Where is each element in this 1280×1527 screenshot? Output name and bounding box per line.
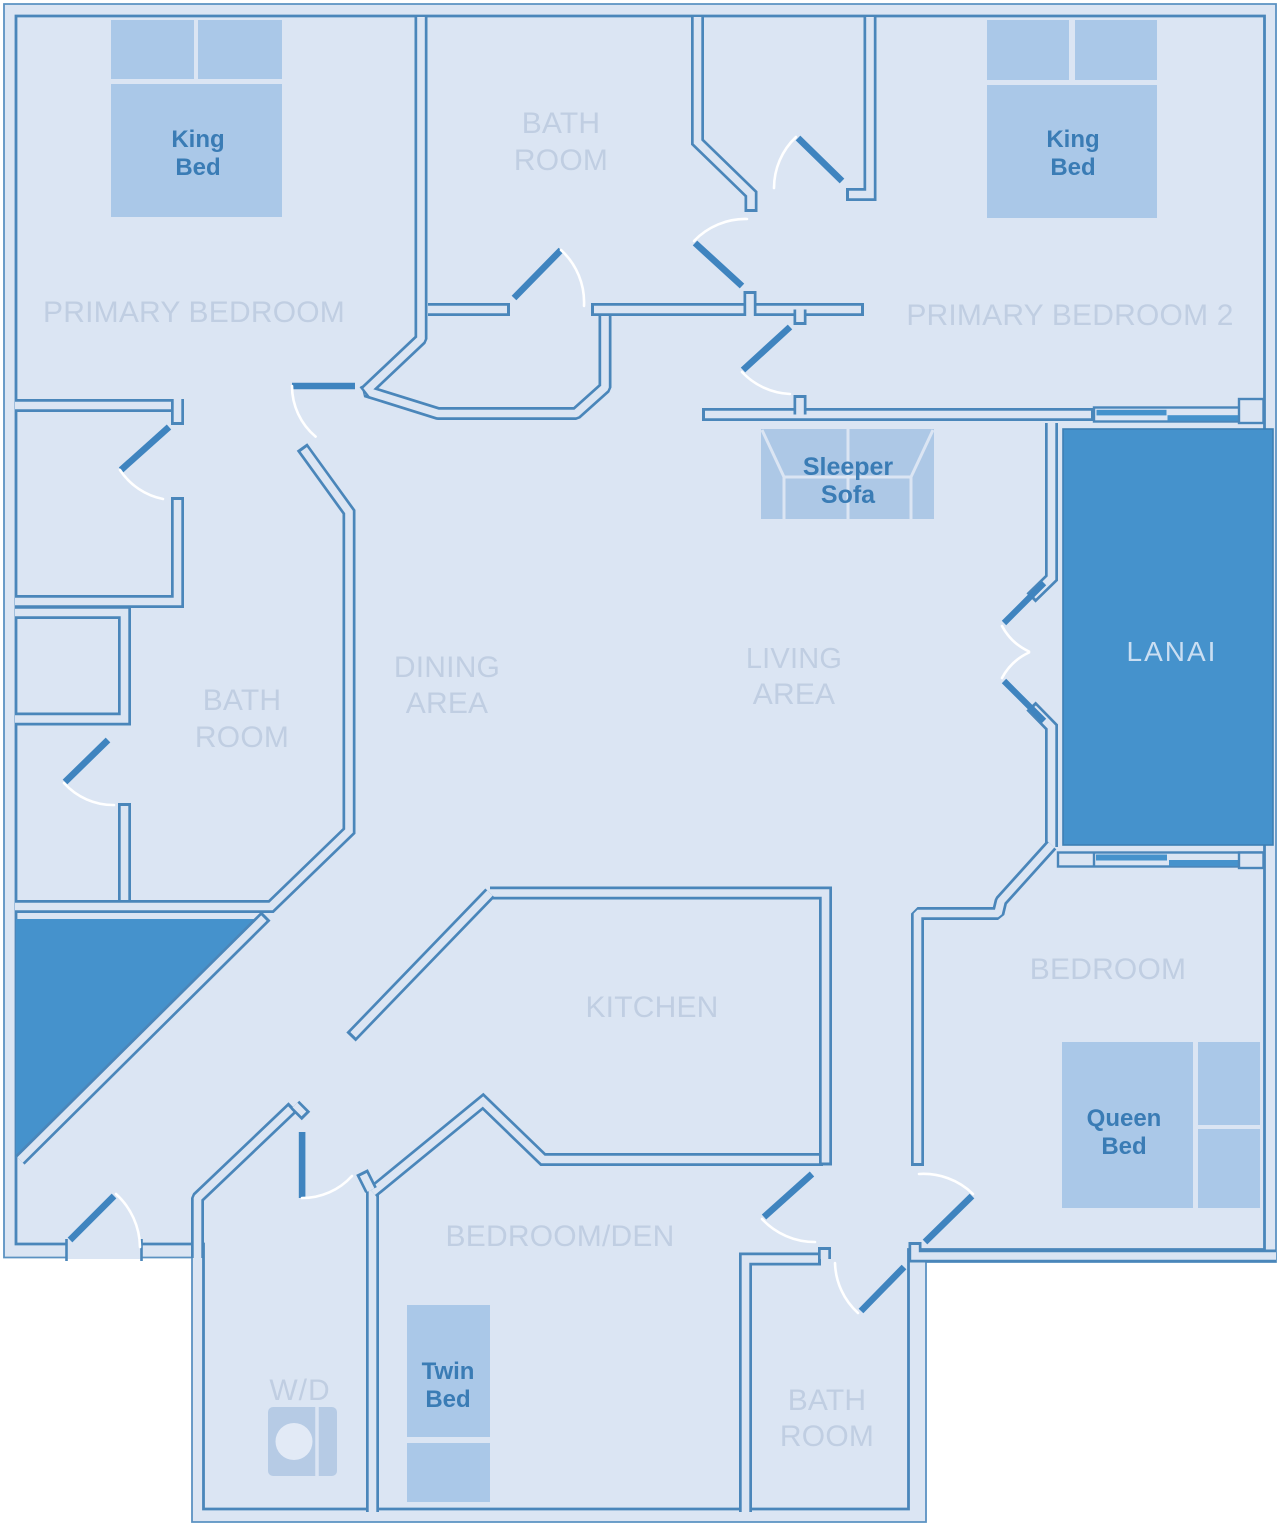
svg-text:PRIMARY BEDROOM: PRIMARY BEDROOM bbox=[43, 296, 345, 329]
svg-text:BATH: BATH bbox=[522, 107, 601, 140]
svg-text:King: King bbox=[1046, 126, 1099, 153]
svg-text:Bed: Bed bbox=[175, 154, 220, 181]
svg-text:BATH: BATH bbox=[788, 1384, 867, 1417]
svg-text:Bed: Bed bbox=[1050, 154, 1095, 181]
svg-text:LANAI: LANAI bbox=[1127, 636, 1218, 667]
svg-text:Sleeper: Sleeper bbox=[803, 453, 894, 481]
svg-text:Sofa: Sofa bbox=[821, 481, 876, 509]
svg-text:W/D: W/D bbox=[269, 1374, 330, 1407]
svg-text:Bed: Bed bbox=[425, 1386, 470, 1413]
svg-text:LIVING: LIVING bbox=[746, 643, 842, 675]
svg-text:PRIMARY BEDROOM 2: PRIMARY BEDROOM 2 bbox=[906, 299, 1233, 332]
svg-text:BEDROOM/DEN: BEDROOM/DEN bbox=[446, 1220, 675, 1253]
svg-text:Queen: Queen bbox=[1087, 1105, 1162, 1132]
svg-text:ROOM: ROOM bbox=[195, 721, 289, 754]
svg-text:Twin: Twin bbox=[422, 1358, 475, 1385]
svg-text:King: King bbox=[171, 126, 224, 153]
svg-text:KITCHEN: KITCHEN bbox=[585, 991, 718, 1024]
svg-text:DINING: DINING bbox=[394, 651, 500, 684]
svg-text:BEDROOM: BEDROOM bbox=[1030, 953, 1186, 986]
svg-text:AREA: AREA bbox=[406, 687, 489, 720]
svg-text:BATH: BATH bbox=[203, 684, 282, 717]
svg-text:ROOM: ROOM bbox=[514, 144, 608, 177]
svg-text:AREA: AREA bbox=[753, 678, 836, 711]
svg-text:Bed: Bed bbox=[1101, 1133, 1146, 1160]
svg-text:ROOM: ROOM bbox=[780, 1420, 874, 1453]
